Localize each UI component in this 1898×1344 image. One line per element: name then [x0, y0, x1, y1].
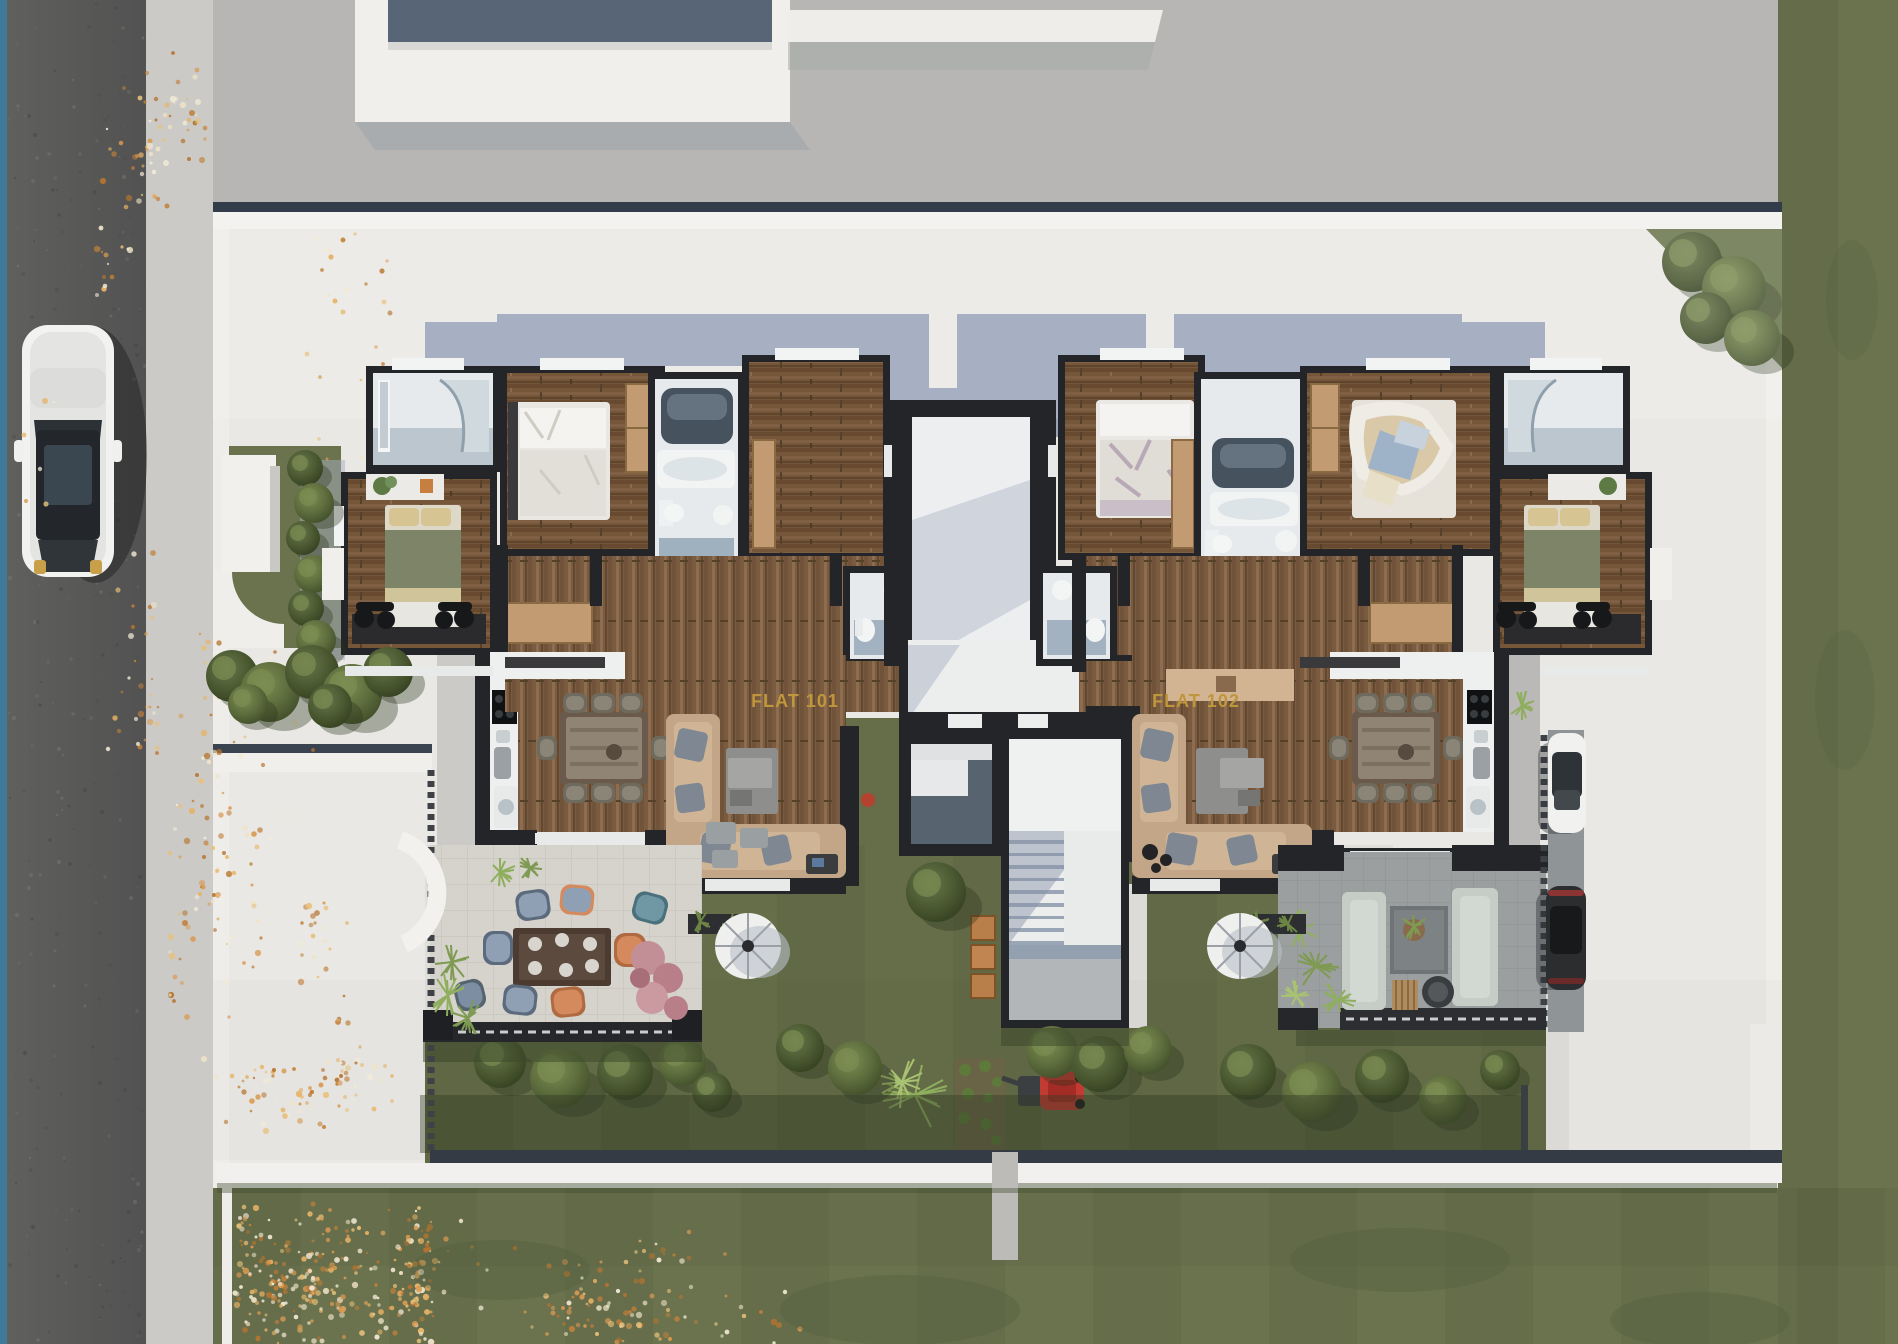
svg-text:FLAT 101: FLAT 101: [751, 691, 839, 711]
svg-text:FLAT 102: FLAT 102: [1152, 691, 1240, 711]
